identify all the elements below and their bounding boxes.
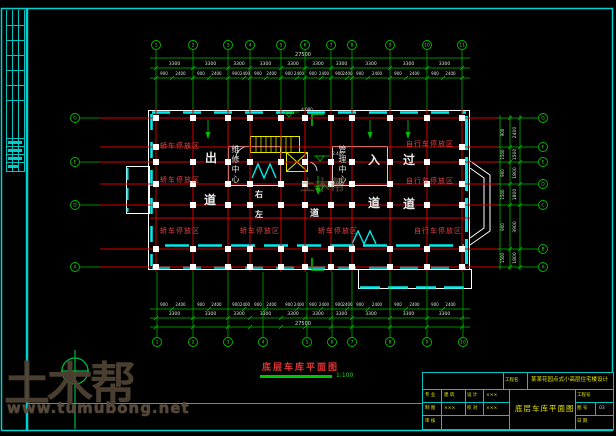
- drawing-title: 底层车库平面图: [262, 360, 339, 373]
- dim-axis-top: 3300: [233, 61, 245, 67]
- axis-bubble-label: G: [541, 116, 545, 122]
- column: [153, 144, 159, 150]
- column: [302, 264, 308, 270]
- dim-detail-bottom: 900: [431, 302, 439, 307]
- column: [387, 202, 393, 208]
- column: [424, 202, 430, 208]
- dim-axis-right: 1800: [512, 252, 518, 264]
- dim-detail-bottom: 900: [285, 302, 293, 307]
- stair: [251, 137, 300, 153]
- column: [424, 246, 430, 252]
- axis-bubble-label: 9: [426, 340, 429, 346]
- axis-bubble-label: 2: [192, 340, 195, 346]
- dim-axis-top: 3300: [439, 61, 451, 67]
- axis-bubble-label: 2: [192, 43, 195, 49]
- dim-axis-bottom: 3300: [312, 311, 324, 317]
- left-entry-bay: [127, 167, 150, 214]
- lane-char: 道: [310, 210, 319, 219]
- dim-detail-right: 1500: [500, 252, 505, 263]
- dim-detail-top: 2400: [319, 71, 330, 76]
- tb-cell: 建 筑: [444, 393, 454, 398]
- dim-detail-top: 2400: [266, 71, 277, 76]
- column: [302, 202, 308, 208]
- column: [278, 202, 284, 208]
- column: [349, 264, 355, 270]
- column: [190, 115, 196, 121]
- dim-axis-bottom: 3300: [403, 311, 415, 317]
- column: [302, 159, 308, 165]
- dim-axis-right: 1500: [512, 149, 518, 161]
- column: [247, 115, 253, 121]
- door-arc: [308, 162, 317, 171]
- axis-bubble-label: B: [541, 247, 544, 253]
- column: [328, 264, 334, 270]
- dim-axis-bottom: 3300: [233, 311, 245, 317]
- column: [459, 181, 465, 187]
- tb-cell: 审 核: [425, 419, 435, 424]
- axis-bubble-label: 4: [262, 340, 265, 346]
- title-underline: [260, 375, 332, 378]
- lane-char: 道: [368, 197, 380, 209]
- spot-elevation-value: 4.080: [301, 107, 313, 112]
- dim-detail-top: 2400: [372, 71, 383, 76]
- dim-detail-bottom: 900: [394, 302, 402, 307]
- dim-axis-right: 2400: [512, 127, 518, 139]
- column: [349, 159, 355, 165]
- dim-detail-right: 900: [500, 128, 505, 136]
- dim-detail-top: 2400: [240, 71, 251, 76]
- dim-detail-bottom: 2400: [445, 302, 456, 307]
- column: [459, 202, 465, 208]
- column: [328, 115, 334, 121]
- lane-char-right: 右: [255, 191, 263, 199]
- dim-detail-top: 900: [197, 71, 205, 76]
- axis-bubble-label: 4: [249, 43, 252, 49]
- dim-detail-bottom: 900: [356, 302, 364, 307]
- axis-bubble-label: E: [74, 160, 77, 166]
- dim-axis-bottom: 3300: [169, 311, 181, 317]
- column: [459, 144, 465, 150]
- column: [459, 159, 465, 165]
- dim-axis-top: 3300: [287, 61, 299, 67]
- zone-label-car: 轿车停放区: [318, 227, 358, 235]
- tb-cell: ×××: [486, 393, 497, 398]
- column: [190, 246, 196, 252]
- dim-detail-top: 2400: [294, 71, 305, 76]
- dim-axis-top: 3300: [169, 61, 181, 67]
- column: [225, 246, 231, 252]
- tb-drawing-name: 底层车库平面图: [515, 404, 575, 413]
- column: [459, 115, 465, 121]
- column: [153, 246, 159, 252]
- axis-bubble-label: 11: [459, 43, 465, 49]
- column: [190, 159, 196, 165]
- dim-axis-bottom: 3300: [287, 311, 299, 317]
- column: [328, 202, 334, 208]
- tb-cell: 设 计: [467, 393, 477, 398]
- axis-bubble-label: 6: [331, 340, 334, 346]
- column: [153, 264, 159, 270]
- dim-detail-right: 1500: [500, 189, 505, 200]
- dim-detail-bottom: 900: [160, 302, 168, 307]
- bottom-right-room: [359, 270, 472, 289]
- column: [247, 159, 253, 165]
- dim-detail-bottom: 2400: [409, 302, 420, 307]
- column: [278, 181, 284, 187]
- dim-detail-right: 900: [500, 223, 505, 231]
- column: [153, 115, 159, 121]
- tb-cell: 制 图: [425, 406, 435, 411]
- dim-detail-bottom: 2400: [211, 302, 222, 307]
- tb-cell: 专 业: [425, 393, 435, 398]
- walls: [128, 113, 471, 288]
- column: [153, 181, 159, 187]
- tb-project-label: 工程名: [505, 378, 519, 383]
- zone-label-bike: 自行车停放区: [406, 177, 454, 185]
- tb-cell: ×××: [444, 406, 455, 411]
- dim-detail-bottom: 2400: [294, 302, 305, 307]
- dim-total-top: 27500: [295, 52, 311, 58]
- dim-detail-top: 900: [254, 71, 262, 76]
- axis-bubble-label: G: [73, 116, 77, 122]
- dim-detail-bottom: 900: [309, 302, 317, 307]
- tb-cell: 工程号: [577, 393, 591, 398]
- tb-cell: ×××: [486, 406, 497, 411]
- column: [153, 159, 159, 165]
- lane-char-exit: 出: [205, 152, 217, 164]
- title-block: 工程名 某某花园点式小高层住宅楼设计 专 业 建 筑 设 计 ××× 制 图 ×…: [422, 372, 614, 430]
- dim-detail-right: 900: [500, 169, 505, 177]
- zone-label-car: 轿车停放区: [160, 227, 200, 235]
- core-label-left: 维修中心: [231, 145, 240, 185]
- dim-detail-top: 2400: [409, 71, 420, 76]
- dim-axis-top: 3300: [336, 61, 348, 67]
- column: [278, 264, 284, 270]
- zone-label-bike: 自行车停放区: [414, 227, 462, 235]
- axis-bubble-label: 3: [227, 43, 230, 49]
- column: [225, 264, 231, 270]
- column: [349, 246, 355, 252]
- dim-axis-top: 3300: [312, 61, 324, 67]
- dim-detail-bottom: 2400: [319, 302, 330, 307]
- right-ramp-inner: [470, 168, 484, 238]
- spot-elevation-triangle: [316, 156, 324, 161]
- column: [278, 159, 284, 165]
- column: [247, 181, 253, 187]
- axis-bubble-label: 10: [460, 340, 466, 346]
- dim-detail-top: 2400: [342, 71, 353, 76]
- column: [225, 115, 231, 121]
- lane-char-left: 左: [255, 211, 263, 219]
- building-outline: [127, 111, 491, 289]
- dim-axis-top: 3300: [205, 61, 217, 67]
- dim-axis-bottom: 3300: [336, 311, 348, 317]
- stair-squiggle: [252, 164, 276, 178]
- watermark-mini: 土木帮: [300, 174, 345, 195]
- dim-detail-top: 2400: [211, 71, 222, 76]
- axis-bubble-label: F: [542, 145, 545, 151]
- dim-detail-bottom: 2400: [240, 302, 251, 307]
- column: [459, 246, 465, 252]
- axis-bubble-label: 5: [280, 43, 283, 49]
- column: [278, 115, 284, 121]
- column: [387, 159, 393, 165]
- lane-char: 道: [403, 198, 415, 210]
- axis-bubble-label: 8: [351, 43, 354, 49]
- axis-bubble-label: A: [541, 265, 545, 271]
- axis-bubble-label: 10: [424, 43, 430, 49]
- column: [278, 246, 284, 252]
- column: [459, 264, 465, 270]
- dim-axis-bottom: 3300: [439, 311, 451, 317]
- axis-bubble-label: D: [541, 182, 545, 188]
- axis-bubble-label: 1: [155, 43, 158, 49]
- dim-detail-bottom: 900: [197, 302, 205, 307]
- column: [387, 264, 393, 270]
- column: [190, 264, 196, 270]
- column: [153, 202, 159, 208]
- dim-detail-top: 900: [394, 71, 402, 76]
- column: [247, 264, 253, 270]
- axis-bubble-label: 1: [156, 340, 159, 346]
- column: [424, 115, 430, 121]
- dim-axis-top: 3300: [365, 61, 377, 67]
- column: [247, 246, 253, 252]
- column: [387, 115, 393, 121]
- tb-cell: 图 号: [577, 406, 587, 411]
- cad-sheet: 123456789101112345678910GEDAGFEDCBA27500…: [0, 0, 616, 436]
- dim-detail-top: 900: [356, 71, 364, 76]
- column: [424, 264, 430, 270]
- lane-char: 道: [204, 194, 216, 206]
- column: [424, 159, 430, 165]
- dim-detail-top: 900: [285, 71, 293, 76]
- dim-detail-top: 900: [160, 71, 168, 76]
- zone-label-car: 轿车停放区: [160, 176, 200, 184]
- lane-char-pass: 过: [403, 154, 415, 166]
- axis-bubble-label: 7: [351, 340, 354, 346]
- dim-detail-top: 2400: [445, 71, 456, 76]
- column: [190, 202, 196, 208]
- dim-axis-right: 1800: [512, 189, 518, 201]
- zone-label-bike: 自行车停放区: [406, 140, 454, 148]
- column: [328, 246, 334, 252]
- dim-total-bottom: 27500: [295, 321, 311, 327]
- column: [225, 202, 231, 208]
- column: [387, 246, 393, 252]
- axis-bubble-label: 3: [227, 340, 230, 346]
- zone-label-car: 轿车停放区: [160, 142, 200, 150]
- dim-axis-top: 3300: [260, 61, 272, 67]
- column: [247, 202, 253, 208]
- column: [349, 202, 355, 208]
- axis-bubble-label: E: [542, 160, 545, 166]
- dim-axis-bottom: 3300: [205, 311, 217, 317]
- dim-detail-top: 2400: [175, 71, 186, 76]
- dim-axis-bottom: 3300: [260, 311, 272, 317]
- dim-detail-bottom: 2400: [342, 302, 353, 307]
- dim-detail-bottom: 900: [254, 302, 262, 307]
- axis-bubble-label: 6: [304, 43, 307, 49]
- dim-axis-bottom: 3300: [365, 311, 377, 317]
- dim-axis-right: 1800: [512, 167, 518, 179]
- tb-cell: 日 期: [577, 419, 587, 424]
- dim-detail-right: 1500: [500, 149, 505, 160]
- dim-detail-bottom: 2400: [175, 302, 186, 307]
- dim-detail-bottom: 2400: [266, 302, 277, 307]
- column: [302, 115, 308, 121]
- dim-detail-bottom: 2400: [372, 302, 383, 307]
- slope-arrow-head: [206, 132, 211, 139]
- signature-strip: [7, 10, 25, 172]
- watermark-url: www.tumubong.net: [7, 399, 190, 417]
- axis-bubble-label: 9: [389, 43, 392, 49]
- tb-cell: 校 对: [467, 406, 477, 411]
- drawing-scale: 1:100: [336, 372, 353, 379]
- axis-bubble-label: 8: [389, 340, 392, 346]
- slope-arrow-head: [406, 132, 411, 139]
- dim-detail-top: 900: [431, 71, 439, 76]
- zone-label-car: 轿车停放区: [240, 227, 280, 235]
- column: [328, 159, 334, 165]
- column: [349, 115, 355, 121]
- tb-project-name: 某某花园点式小高层住宅楼设计: [531, 378, 608, 383]
- dim-axis-top: 3300: [403, 61, 415, 67]
- axis-bubble-label: C: [541, 203, 544, 209]
- axis-bubble-label: 5: [306, 340, 309, 346]
- axis-bubble-label: A: [73, 265, 77, 271]
- column: [387, 181, 393, 187]
- column: [302, 246, 308, 252]
- axis-bubble-label: 7: [330, 43, 333, 49]
- column: [349, 181, 355, 187]
- tb-sheet-number: 03: [599, 406, 605, 411]
- lane-char-enter: 入: [368, 154, 380, 166]
- slope-arrow-head: [368, 132, 373, 139]
- axis-bubble-label: D: [73, 203, 77, 209]
- dim-detail-top: 900: [309, 71, 317, 76]
- dim-axis-right: 3900: [512, 221, 518, 233]
- right-ramp-outer: [470, 161, 490, 245]
